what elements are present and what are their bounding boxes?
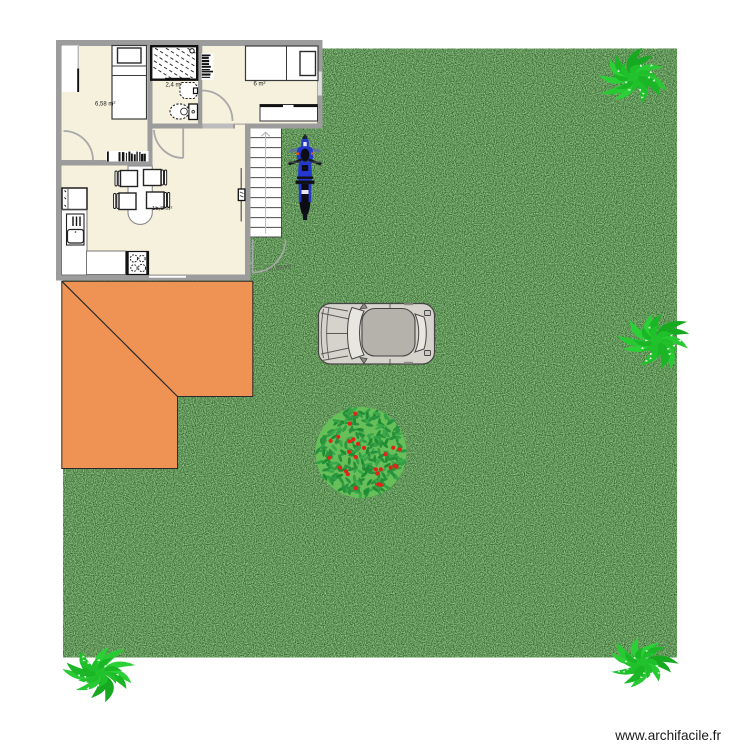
svg-text:6,58 m²: 6,58 m² [95,102,115,108]
svg-text:www.archifacile.fr: www.archifacile.fr [614,728,721,743]
svg-text:15,9 m²: 15,9 m² [152,206,172,212]
svg-text:6 m²: 6 m² [254,82,266,88]
